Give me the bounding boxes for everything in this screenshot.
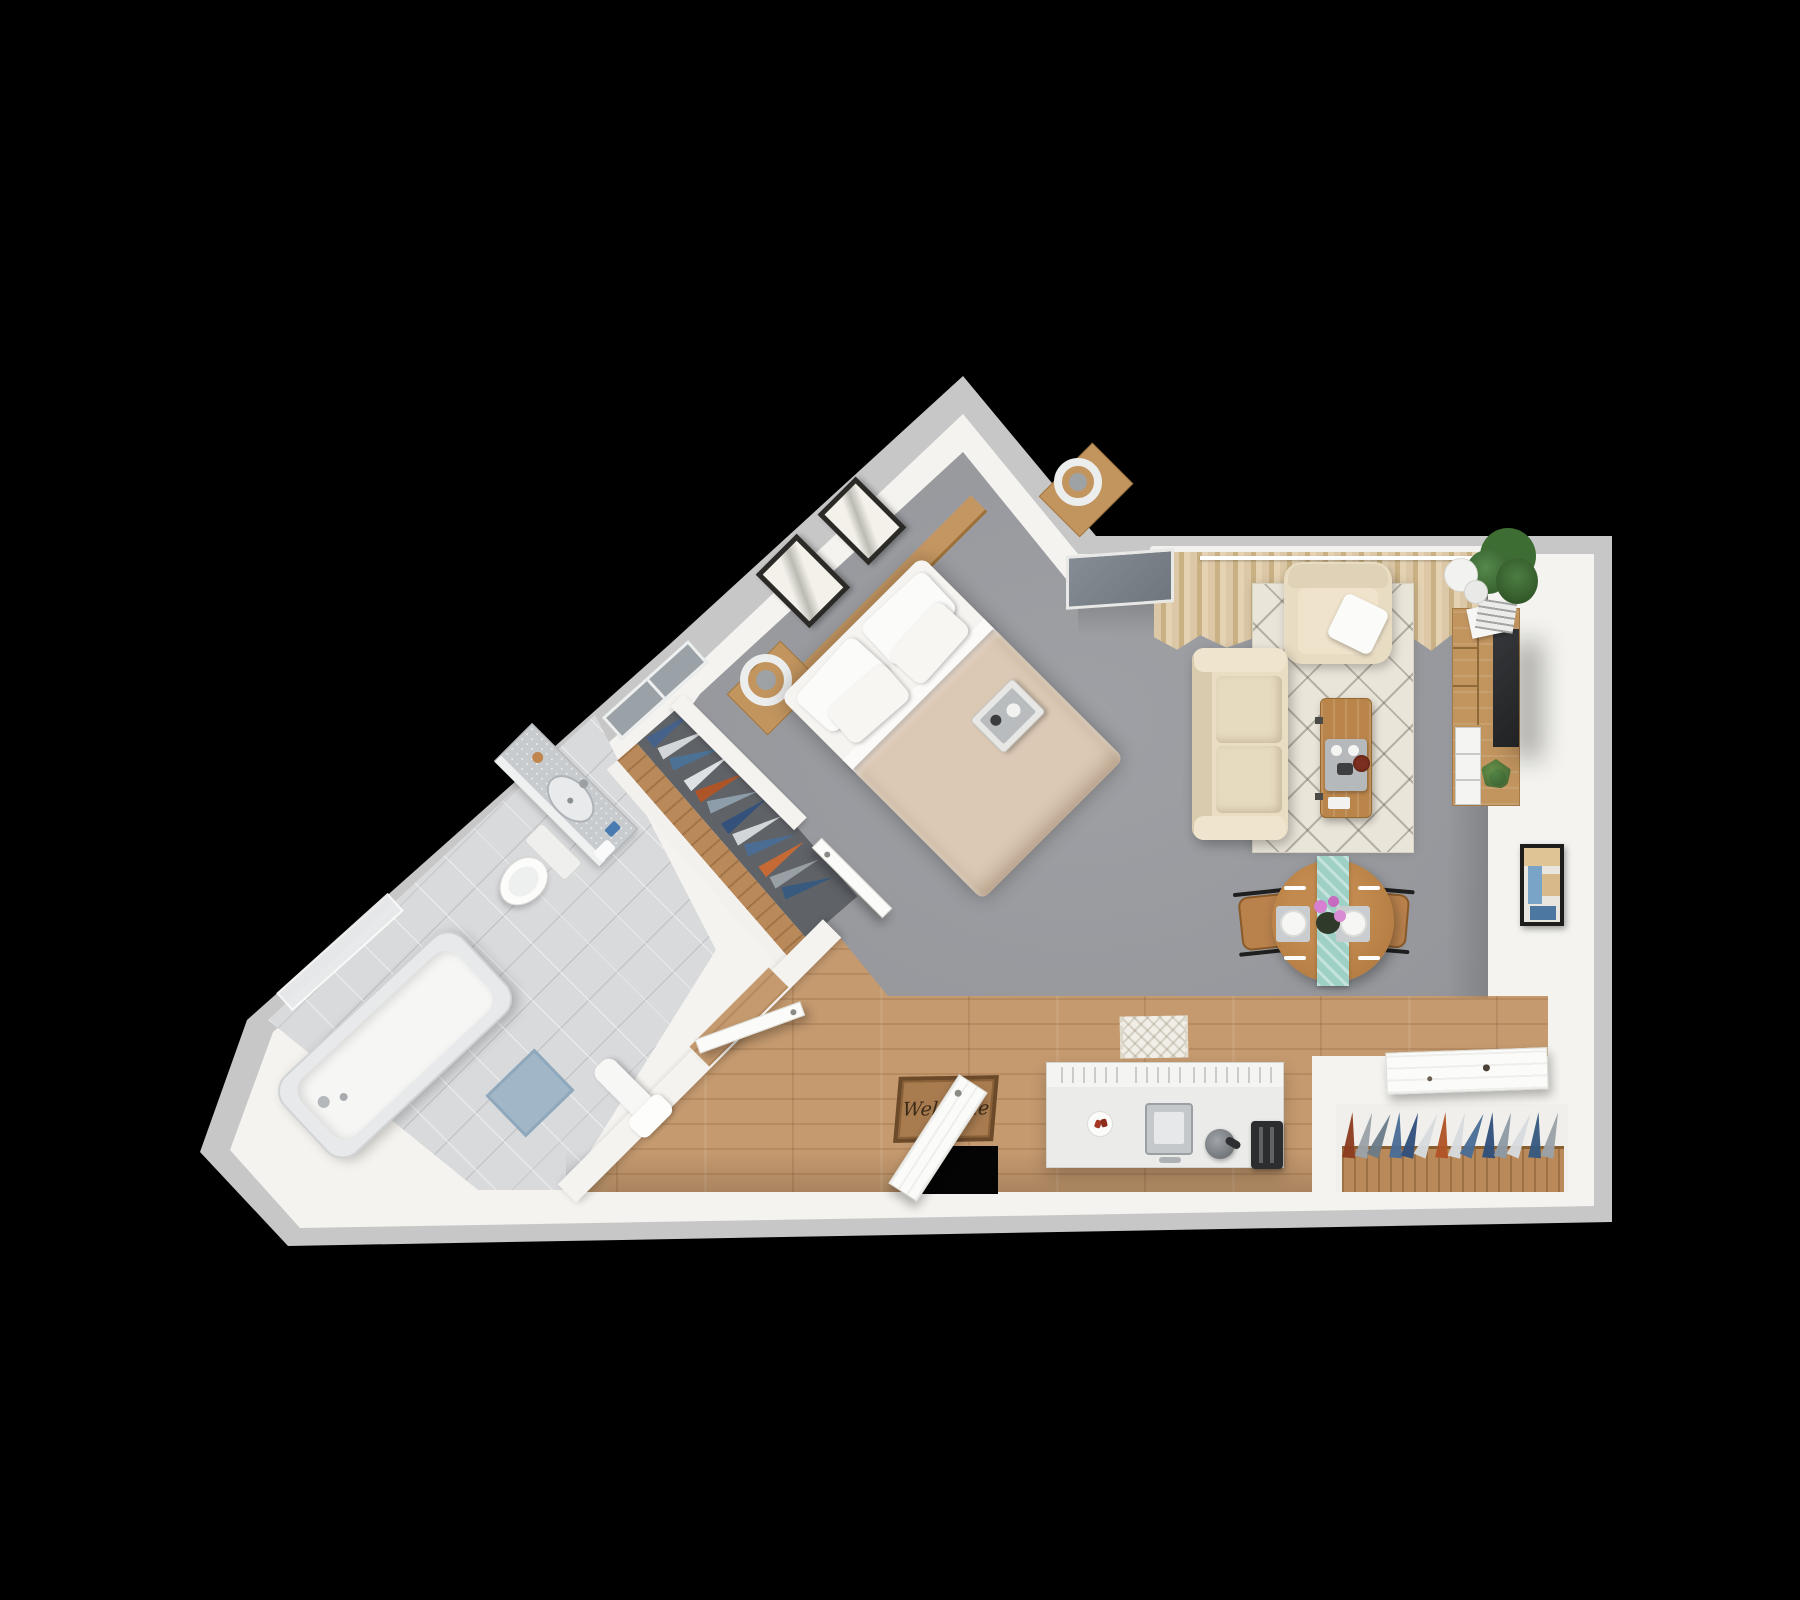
console-drawers: [1455, 727, 1481, 805]
painting-block: [1528, 866, 1542, 904]
cooktop-grate: [1135, 1067, 1185, 1083]
flower: [1328, 896, 1339, 907]
painting-block: [1530, 906, 1556, 920]
plate: [1464, 580, 1488, 604]
decor-plates: [1444, 558, 1504, 614]
sofa: [1192, 648, 1288, 840]
flower: [1334, 910, 1346, 922]
sofa-armrest: [1194, 816, 1286, 840]
decor-dish: [1353, 755, 1370, 772]
sink-faucet: [1159, 1157, 1181, 1163]
door-handle: [823, 850, 831, 858]
sink-basin: [1154, 1112, 1184, 1144]
skylight-panel: [1066, 548, 1174, 610]
clothing-item: [1540, 1111, 1564, 1159]
kettle: [1205, 1129, 1235, 1159]
tv-console: [1452, 608, 1520, 806]
door-handle: [1483, 1064, 1490, 1071]
painting-block: [1542, 874, 1560, 896]
kitchen-island: [1046, 1062, 1284, 1168]
soap-dish: [530, 750, 546, 766]
curtain-rod: [1200, 556, 1484, 560]
kettle-handle: [1224, 1136, 1242, 1151]
wall-painting: [1520, 844, 1564, 926]
sofa-armrest: [1194, 648, 1286, 672]
sink-drain: [566, 796, 574, 804]
armchair-back: [1288, 564, 1388, 588]
toothbrush-cup: [604, 820, 621, 837]
door-handle: [1427, 1076, 1432, 1081]
food-plate: [1087, 1111, 1113, 1137]
door-handle: [953, 1088, 963, 1098]
cutlery: [1284, 956, 1306, 960]
coffee-cup: [1348, 745, 1359, 756]
food: [1100, 1118, 1108, 1127]
cutlery: [1358, 956, 1380, 960]
dinner-plate: [1280, 910, 1307, 937]
console-plant: [1481, 759, 1515, 799]
closet-door-open: [1385, 1047, 1548, 1095]
sofa-cushion: [1216, 676, 1282, 743]
cooktop-grate: [1193, 1067, 1277, 1083]
cooktop-grate: [1061, 1067, 1125, 1083]
sofa-back: [1192, 652, 1212, 836]
toaster: [1251, 1121, 1283, 1169]
closet-clothes: [1340, 1108, 1564, 1160]
table-leg: [1315, 793, 1323, 800]
tv-screen: [1493, 629, 1519, 747]
flower: [1314, 900, 1327, 913]
armchair: [1284, 562, 1392, 664]
lamp-bulb: [1069, 473, 1087, 491]
kitchen-sink: [1145, 1103, 1193, 1155]
cutlery: [1358, 886, 1380, 890]
coffee-pot: [1337, 763, 1353, 775]
bedroom-window-mullion: [647, 679, 665, 699]
lamp-bulb: [756, 670, 776, 690]
plant-leaves: [1481, 759, 1511, 789]
dining-table: [1272, 860, 1394, 982]
floor-plan: Welcome: [0, 0, 1800, 1600]
door-handle: [790, 1008, 798, 1016]
toilet-seat: [502, 860, 544, 902]
coffee-cup: [1331, 745, 1342, 756]
table-leg: [1315, 717, 1323, 724]
nightstand-upper-lamp: [1054, 458, 1102, 506]
painting-block: [1524, 848, 1560, 866]
remote: [1328, 797, 1350, 809]
coffee-table: [1320, 698, 1372, 818]
cutlery: [1284, 886, 1306, 890]
sofa-cushion: [1216, 746, 1282, 813]
kitchen-runner-rug: [1120, 1015, 1189, 1058]
